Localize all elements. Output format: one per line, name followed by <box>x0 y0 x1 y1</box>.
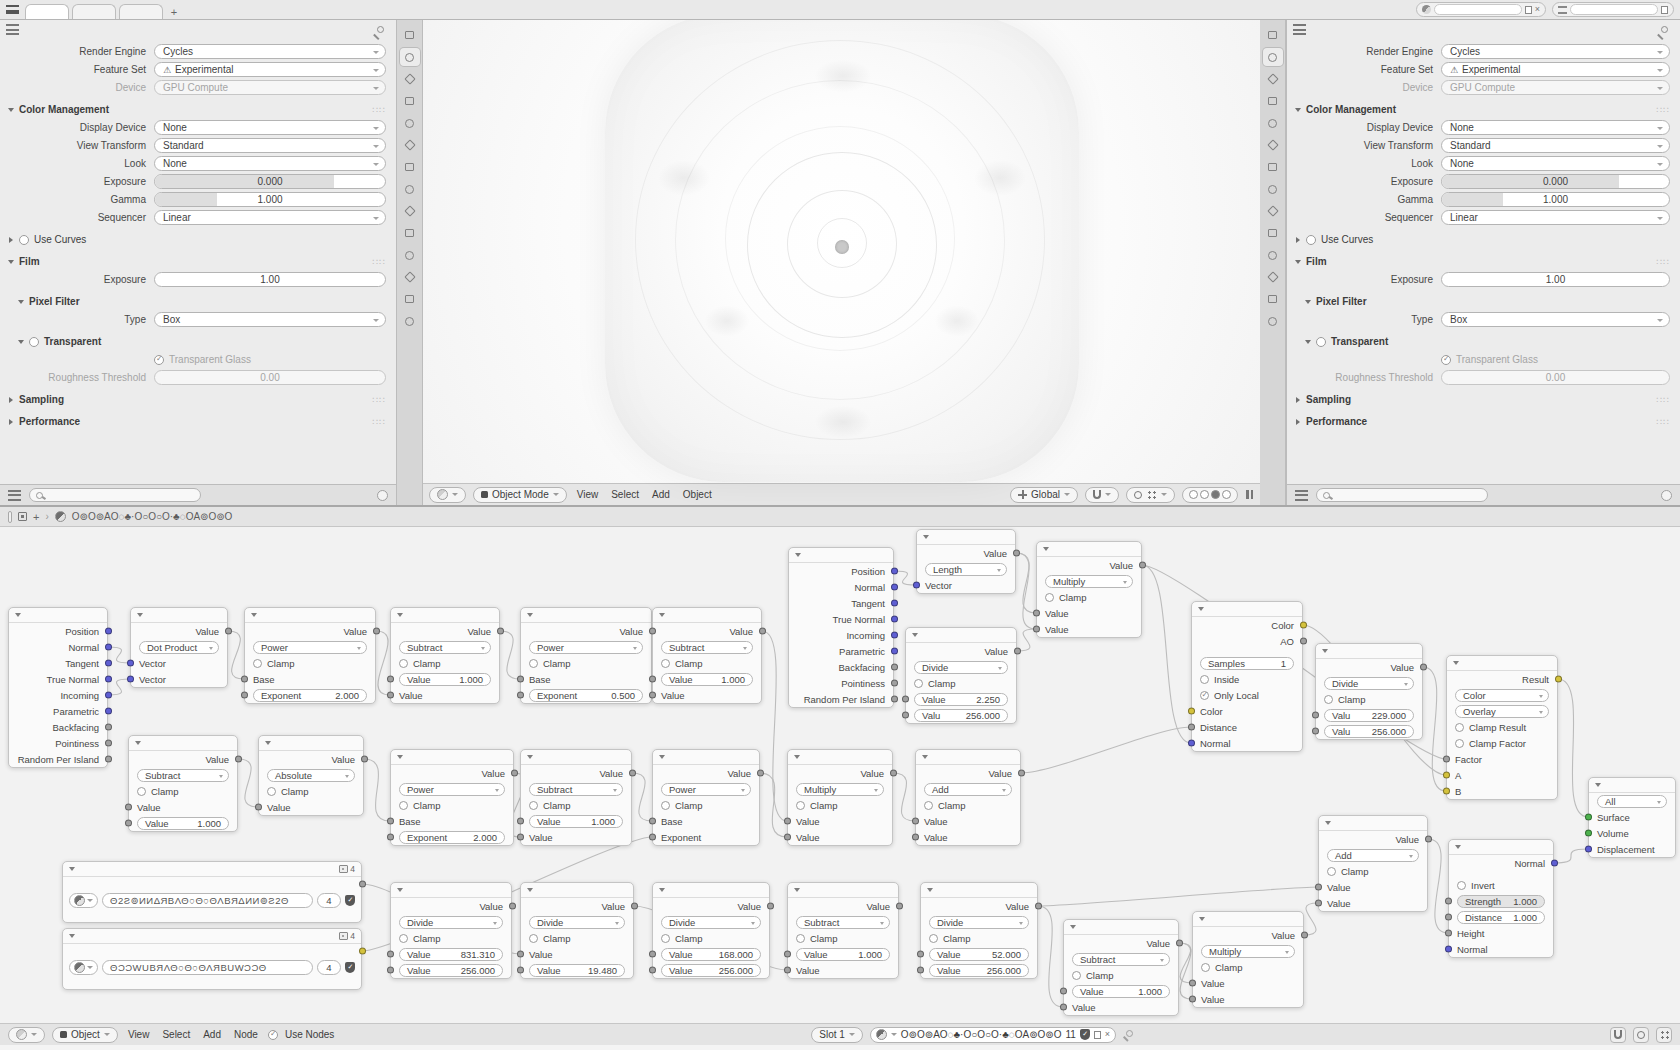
socket-sub2:i1[interactable] <box>649 692 656 699</box>
section-pixel-filter[interactable]: Pixel Filter <box>6 293 386 310</box>
section-use-curves[interactable]: Use Curves <box>6 231 386 248</box>
shading-preview-button[interactable] <box>1211 490 1220 499</box>
fake-user-shield-icon[interactable] <box>1080 1029 1090 1040</box>
socket-bump1:i3[interactable] <box>1445 946 1452 953</box>
socket-sub3:i1[interactable] <box>125 820 132 827</box>
properties-editor-icon[interactable] <box>1293 24 1306 35</box>
sequencer-select[interactable]: Linear <box>154 210 386 225</box>
snap-toggle[interactable] <box>1085 487 1119 503</box>
node-header[interactable] <box>921 883 1037 898</box>
value-field[interactable]: Valu256.000 <box>914 709 1008 722</box>
look-select[interactable]: None <box>154 156 386 171</box>
material-users-count[interactable]: 11 <box>1065 1029 1075 1040</box>
menu-add[interactable]: Add <box>649 489 673 500</box>
section-transparent[interactable]: Transparent <box>1293 333 1670 350</box>
socket-bump1:o0[interactable] <box>1551 860 1558 867</box>
socket-geo2:o2[interactable] <box>891 600 898 607</box>
image-datablock-button[interactable] <box>69 960 98 975</box>
socket-div1948:i0[interactable] <box>517 951 524 958</box>
operation-select[interactable]: Divide <box>1324 677 1414 690</box>
transparent-glass-checkbox[interactable] <box>154 355 164 365</box>
use-nodes-checkbox[interactable] <box>268 1030 278 1040</box>
render-engine-select[interactable]: Cycles <box>154 44 386 59</box>
texture-tab[interactable] <box>400 312 420 330</box>
socket-div831:i0[interactable] <box>387 951 394 958</box>
node-header[interactable] <box>1037 542 1141 557</box>
grid-button[interactable] <box>1656 1027 1672 1043</box>
socket-div229:i0[interactable] <box>1312 712 1319 719</box>
properties-editor-type-icon[interactable] <box>8 490 21 501</box>
menu-icon[interactable] <box>6 5 19 14</box>
tool-tab[interactable] <box>400 26 420 44</box>
socket-pow1:i0[interactable] <box>241 676 248 683</box>
view-layer-name-field[interactable] <box>1570 4 1658 15</box>
image-name-field[interactable]: ΘƆƆWUBЯΛΘ○Θ○ΘΛЯBUWƆƆΘ <box>102 960 313 975</box>
gamma-slider[interactable]: 1.000 <box>154 192 386 207</box>
wire[interactable] <box>632 773 652 821</box>
checkbox-clamp-factor[interactable] <box>1455 739 1464 748</box>
operation-select[interactable]: All <box>1597 795 1667 808</box>
feature-set-select[interactable]: ⚠Experimental <box>154 62 386 77</box>
collapse-chevron-icon[interactable] <box>659 755 665 759</box>
scene-tab[interactable] <box>400 114 420 132</box>
collapse-chevron-icon[interactable] <box>527 888 533 892</box>
value-field[interactable]: Value256.000 <box>929 964 1029 977</box>
image-name-field[interactable]: Θ2Ƨ⊚ИИΔЯBΛΘ○Θ○ΘΛBЯΔИИ⊚Ƨ2Θ <box>102 893 313 908</box>
operation-select[interactable]: Divide <box>661 916 761 929</box>
value-field[interactable]: Valu256.000 <box>1324 725 1414 738</box>
socket-mix1:i0[interactable] <box>1443 756 1450 763</box>
collapse-chevron-icon[interactable] <box>1322 649 1328 653</box>
value-field[interactable]: Value1.000 <box>137 817 229 830</box>
collapse-chevron-icon[interactable] <box>923 535 929 539</box>
menu-select[interactable]: Select <box>608 489 642 500</box>
socket-div168:i1[interactable] <box>649 967 656 974</box>
object-tab[interactable] <box>400 158 420 176</box>
checkbox-clamp[interactable] <box>1324 695 1333 704</box>
collapse-chevron-icon[interactable] <box>659 888 665 892</box>
socket-div1948:o0[interactable] <box>631 903 638 910</box>
operation-select[interactable]: Divide <box>529 916 625 929</box>
socket-abs1:i0[interactable] <box>255 804 262 811</box>
socket-ao1:i1[interactable] <box>1188 724 1195 731</box>
operation-select[interactable]: Multiply <box>1201 945 1295 958</box>
node-header[interactable] <box>391 750 513 765</box>
view-layer-tab[interactable] <box>400 92 420 110</box>
node-header[interactable]: 4 <box>63 862 361 877</box>
socket-pow3:i1[interactable] <box>387 834 394 841</box>
collapse-chevron-icon[interactable] <box>397 888 403 892</box>
socket-div831:i1[interactable] <box>387 967 394 974</box>
node-geo1[interactable]: PositionNormalTangentTrue NormalIncoming… <box>8 607 108 768</box>
node-mix1[interactable]: ResultColorOverlayClamp ResultClamp Fact… <box>1446 655 1558 800</box>
socket-div831:o0[interactable] <box>509 903 516 910</box>
transparent-glass-checkbox[interactable] <box>1441 355 1451 365</box>
value-field[interactable]: Value2.250 <box>914 693 1008 706</box>
close-icon[interactable]: × <box>1535 5 1540 14</box>
socket-ao1:i0[interactable] <box>1188 708 1195 715</box>
operation-select[interactable]: Dot Product <box>139 641 219 654</box>
scene-tab[interactable] <box>1263 114 1283 132</box>
roughness-threshold-field[interactable]: 0.00 <box>1441 370 1670 385</box>
wire[interactable] <box>1021 727 1191 773</box>
socket-subb:i0[interactable] <box>784 951 791 958</box>
viewport-object[interactable] <box>605 20 1079 482</box>
modifiers-tab[interactable] <box>1263 180 1283 198</box>
collapse-chevron-icon[interactable] <box>527 613 533 617</box>
socket-sub4:i1[interactable] <box>517 834 524 841</box>
overlap-button[interactable] <box>1633 1027 1649 1043</box>
node-header[interactable] <box>1316 644 1422 659</box>
constraints-tab[interactable] <box>400 246 420 264</box>
socket-abs1:o0[interactable] <box>361 756 368 763</box>
checkbox-clamp[interactable] <box>1045 593 1054 602</box>
node-mul3[interactable]: ValueMultiplyClampValueValue <box>1192 911 1304 1008</box>
value-field[interactable]: Value1.000 <box>399 673 491 686</box>
socket-subc:i1[interactable] <box>1060 1004 1067 1011</box>
shading-wireframe-button[interactable] <box>1189 490 1198 499</box>
node-header[interactable] <box>129 736 237 751</box>
node-subb[interactable]: ValueSubtractClampValue1.000Value <box>787 882 899 979</box>
node-geo2[interactable]: PositionNormalTangentTrue NormalIncoming… <box>788 547 894 708</box>
socket-sub1:i0[interactable] <box>387 676 394 683</box>
value-field[interactable]: Value831.310 <box>399 948 503 961</box>
collapse-chevron-icon[interactable] <box>69 867 75 871</box>
value-field[interactable]: Valu229.000 <box>1324 709 1414 722</box>
image-users-count[interactable]: 4 <box>317 893 341 908</box>
socket-div52:i0[interactable] <box>917 951 924 958</box>
collapse-chevron-icon[interactable] <box>1198 607 1204 611</box>
constraints-tab[interactable] <box>1263 246 1283 264</box>
operation-select[interactable]: Overlay <box>1455 705 1549 718</box>
node-abs1[interactable]: ValueAbsoluteClampValue <box>258 735 364 816</box>
value-field[interactable]: Exponent2.000 <box>399 831 505 844</box>
physics-tab[interactable] <box>400 224 420 242</box>
collapse-chevron-icon[interactable] <box>659 613 665 617</box>
checkbox-clamp[interactable] <box>796 934 805 943</box>
node-pow1[interactable]: ValuePowerClampBaseExponent2.000 <box>244 607 376 704</box>
pause-icon[interactable] <box>1245 490 1254 499</box>
options-button[interactable] <box>377 490 388 501</box>
collapse-chevron-icon[interactable] <box>1455 845 1461 849</box>
wire[interactable] <box>1016 553 1036 629</box>
checkbox-clamp[interactable] <box>253 659 262 668</box>
value-field[interactable]: Value1.000 <box>1072 985 1170 998</box>
node-canvas[interactable]: PositionNormalTangentTrue NormalIncoming… <box>0 527 1680 1023</box>
node-pow3[interactable]: ValuePowerClampBaseExponent2.000 <box>390 749 514 846</box>
node-header[interactable] <box>653 883 769 898</box>
socket-mul2:o0[interactable] <box>890 770 897 777</box>
node-header[interactable] <box>1192 602 1302 617</box>
socket-geo1:o3[interactable] <box>105 676 112 683</box>
options-button[interactable] <box>1661 490 1672 501</box>
view-transform-select[interactable]: Standard <box>154 138 386 153</box>
node-add2[interactable]: ValueAddClampValueValue <box>1318 815 1428 912</box>
object-tab[interactable] <box>1263 158 1283 176</box>
checkbox-clamp[interactable] <box>529 934 538 943</box>
node-header[interactable] <box>788 883 898 898</box>
collapse-chevron-icon[interactable] <box>1199 917 1205 921</box>
socket-sub2:o0[interactable] <box>759 628 766 635</box>
operation-select[interactable]: Subtract <box>399 641 491 654</box>
wire[interactable] <box>1017 629 1036 651</box>
socket-sub3:o0[interactable] <box>235 756 242 763</box>
socket-pow3:o0[interactable] <box>511 770 518 777</box>
node-add1[interactable]: ValueAddClampValueValue <box>915 749 1021 846</box>
socket-geo2:o4[interactable] <box>891 632 898 639</box>
node-pow4[interactable]: ValuePowerClampBaseExponent <box>652 749 760 846</box>
fake-user-shield-icon[interactable] <box>345 962 355 973</box>
value-field[interactable]: Samples1 <box>1200 657 1294 670</box>
checkbox-clamp[interactable] <box>137 787 146 796</box>
section-transparent[interactable]: Transparent <box>6 333 386 350</box>
grip-icon[interactable] <box>373 257 386 267</box>
add-workspace-button[interactable]: + <box>166 4 182 19</box>
collapse-chevron-icon[interactable] <box>795 553 801 557</box>
filter-type-select[interactable]: Box <box>1441 312 1670 327</box>
operation-select[interactable]: Subtract <box>1072 953 1170 966</box>
tool-tab[interactable] <box>1263 26 1283 44</box>
node-header[interactable] <box>653 608 761 623</box>
socket-sub1:o0[interactable] <box>497 628 504 635</box>
value-field[interactable]: Distance1.000 <box>1457 911 1545 924</box>
node-len1[interactable]: ValueLengthVector <box>916 529 1016 594</box>
socket-sub1:i1[interactable] <box>387 692 394 699</box>
socket-mul3:o0[interactable] <box>1301 932 1308 939</box>
node-header[interactable] <box>906 628 1016 643</box>
section-performance[interactable]: Performance <box>6 413 386 430</box>
node-div229[interactable]: ValueDivideClampValu229.000Valu256.000 <box>1315 643 1423 740</box>
socket-add1:o0[interactable] <box>1018 770 1025 777</box>
slot-select[interactable]: Slot 1 <box>811 1027 863 1043</box>
editor-type-button[interactable] <box>8 1027 45 1043</box>
wire[interactable] <box>500 631 520 679</box>
wire[interactable] <box>228 631 244 679</box>
socket-sub4:i0[interactable] <box>517 818 524 825</box>
socket-pow1:o0[interactable] <box>373 628 380 635</box>
shading-rendered-button[interactable] <box>1222 490 1231 499</box>
checkbox-clamp[interactable] <box>796 801 805 810</box>
grip-icon[interactable] <box>373 395 386 405</box>
node-div52[interactable]: ValueDivideClampValue52.000Value256.000 <box>920 882 1038 979</box>
collapse-chevron-icon[interactable] <box>69 934 75 938</box>
grip-icon[interactable] <box>1657 257 1670 267</box>
socket-pow4:i0[interactable] <box>649 818 656 825</box>
socket-len1:o0[interactable] <box>1013 550 1020 557</box>
value-field[interactable]: Value1.000 <box>529 815 623 828</box>
transparent-checkbox[interactable] <box>1316 337 1326 347</box>
socket-pow2:o0[interactable] <box>649 628 656 635</box>
grip-icon[interactable] <box>373 105 386 115</box>
checkbox-clamp[interactable] <box>529 659 538 668</box>
search-input[interactable] <box>29 488 201 502</box>
operation-select[interactable]: Multiply <box>796 783 884 796</box>
socket-add2:i1[interactable] <box>1315 900 1322 907</box>
socket-add2:i0[interactable] <box>1315 884 1322 891</box>
node-div1948[interactable]: ValueDivideClampValueValue19.480 <box>520 882 634 979</box>
socket-grp1:o0[interactable] <box>359 881 366 888</box>
object-data-tab[interactable] <box>1263 268 1283 286</box>
section-performance[interactable]: Performance <box>1293 413 1670 430</box>
properties-editor-icon[interactable] <box>6 24 19 35</box>
device-select[interactable]: GPU Compute <box>1441 80 1670 95</box>
wire[interactable] <box>1179 943 1192 999</box>
properties-editor-type-icon[interactable] <box>1295 490 1308 501</box>
socket-div168:o0[interactable] <box>767 903 774 910</box>
node-div2250[interactable]: ValueDivideClampValue2.250Valu256.000 <box>905 627 1017 724</box>
grip-icon[interactable] <box>373 417 386 427</box>
socket-pow4:o0[interactable] <box>757 770 764 777</box>
mode-select[interactable]: Object Mode <box>473 487 567 503</box>
operation-select[interactable]: Subtract <box>529 783 623 796</box>
proportional-editing-toggle[interactable] <box>1126 487 1175 503</box>
checkbox-clamp[interactable] <box>661 934 670 943</box>
object-data-tab[interactable] <box>400 268 420 286</box>
workspace-tab[interactable] <box>72 4 116 19</box>
socket-dot1:i1[interactable] <box>127 676 134 683</box>
checkbox-clamp[interactable] <box>924 801 933 810</box>
node-sub3[interactable]: ValueSubtractClampValueValue1.000 <box>128 735 238 832</box>
checkbox-clamp[interactable] <box>1072 971 1081 980</box>
shading-solid-button[interactable] <box>1200 490 1209 499</box>
render-engine-select[interactable]: Cycles <box>1441 44 1670 59</box>
gamma-slider[interactable]: 1.000 <box>1441 192 1670 207</box>
node-header[interactable] <box>1449 840 1553 855</box>
material-tab[interactable] <box>1263 290 1283 308</box>
collapse-chevron-icon[interactable] <box>927 888 933 892</box>
editor-toggle-chip[interactable] <box>8 511 12 523</box>
menu-view[interactable]: View <box>125 1029 153 1040</box>
checkbox-clamp[interactable] <box>529 801 538 810</box>
collapse-chevron-icon[interactable] <box>912 633 918 637</box>
display-device-select[interactable]: None <box>1441 120 1670 135</box>
socket-pow2:i0[interactable] <box>517 676 524 683</box>
display-device-select[interactable]: None <box>154 120 386 135</box>
socket-mix1:i2[interactable] <box>1443 788 1450 795</box>
editor-type-button[interactable] <box>429 487 466 503</box>
socket-geo2:o3[interactable] <box>891 616 898 623</box>
operation-select[interactable]: Multiply <box>1045 575 1133 588</box>
socket-div1948:i1[interactable] <box>517 967 524 974</box>
node-sub2[interactable]: ValueSubtractClampValue1.000Value <box>652 607 762 704</box>
operation-select[interactable]: Color <box>1455 689 1549 702</box>
socket-out1:i0[interactable] <box>1585 814 1592 821</box>
operation-select[interactable]: Power <box>399 783 505 796</box>
grip-icon[interactable] <box>1657 417 1670 427</box>
socket-div229:o0[interactable] <box>1420 664 1427 671</box>
socket-subc:i0[interactable] <box>1060 988 1067 995</box>
collapse-chevron-icon[interactable] <box>794 888 800 892</box>
material-tab[interactable] <box>400 290 420 308</box>
socket-mul3:i1[interactable] <box>1189 996 1196 1003</box>
filter-type-select[interactable]: Box <box>154 312 386 327</box>
checkbox-clamp-result[interactable] <box>1455 723 1464 732</box>
film-exposure-field[interactable]: 1.00 <box>1441 272 1670 287</box>
exposure-slider[interactable]: 0.000 <box>1441 174 1670 189</box>
node-header[interactable] <box>917 530 1015 545</box>
socket-dot1:o0[interactable] <box>225 628 232 635</box>
wire[interactable] <box>1038 887 1318 906</box>
roughness-threshold-field[interactable]: 0.00 <box>154 370 386 385</box>
feature-set-select[interactable]: ⚠Experimental <box>1441 62 1670 77</box>
socket-out1:i2[interactable] <box>1585 846 1592 853</box>
socket-bump1:i0[interactable] <box>1445 898 1452 905</box>
socket-div2250:i1[interactable] <box>902 712 909 719</box>
socket-mix1:i1[interactable] <box>1443 772 1450 779</box>
operation-select[interactable]: Subtract <box>796 916 890 929</box>
output-tab[interactable] <box>400 70 420 88</box>
node-sub1[interactable]: ValueSubtractClampValue1.000Value <box>390 607 500 704</box>
socket-multop:o0[interactable] <box>1139 562 1146 569</box>
socket-geo1:o8[interactable] <box>105 756 112 763</box>
socket-div2250:o0[interactable] <box>1014 648 1021 655</box>
node-grp2[interactable]: 4ΘƆƆWUBЯΛΘ○Θ○ΘΛЯBUWƆƆΘ4 <box>62 928 362 990</box>
socket-bump1:i1[interactable] <box>1445 914 1452 921</box>
sequencer-select[interactable]: Linear <box>1441 210 1670 225</box>
node-header[interactable] <box>521 608 651 623</box>
collapse-chevron-icon[interactable] <box>922 755 928 759</box>
value-field[interactable]: Value19.480 <box>529 964 625 977</box>
socket-geo2:o5[interactable] <box>891 648 898 655</box>
node-header[interactable] <box>788 750 892 765</box>
node-subc[interactable]: ValueSubtractClampValue1.000Value <box>1063 919 1179 1016</box>
modifiers-tab[interactable] <box>400 180 420 198</box>
collapse-chevron-icon[interactable] <box>265 741 271 745</box>
socket-pow1:i1[interactable] <box>241 692 248 699</box>
viewport-stage[interactable] <box>423 20 1260 483</box>
socket-geo1:o1[interactable] <box>105 644 112 651</box>
node-out1[interactable]: AllSurfaceVolumeDisplacement <box>1588 777 1676 858</box>
socket-div52:o0[interactable] <box>1035 903 1042 910</box>
operation-select[interactable]: Divide <box>399 916 503 929</box>
workspace-tab[interactable] <box>25 4 69 19</box>
section-sampling[interactable]: Sampling <box>6 391 386 408</box>
node-header[interactable] <box>653 750 759 765</box>
socket-multop:i0[interactable] <box>1033 610 1040 617</box>
menu-view[interactable]: View <box>574 489 602 500</box>
particles-tab[interactable] <box>1263 202 1283 220</box>
socket-geo1:o2[interactable] <box>105 660 112 667</box>
socket-bump1:i2[interactable] <box>1445 930 1452 937</box>
view-transform-select[interactable]: Standard <box>1441 138 1670 153</box>
physics-tab[interactable] <box>1263 224 1283 242</box>
node-grp1[interactable]: 4Θ2Ƨ⊚ИИΔЯBΛΘ○Θ○ΘΛBЯΔИИ⊚Ƨ2Θ4 <box>62 861 362 923</box>
socket-div2250:i0[interactable] <box>902 696 909 703</box>
socket-div229:i1[interactable] <box>1312 728 1319 735</box>
value-field[interactable]: Exponent2.000 <box>253 689 367 702</box>
operation-select[interactable]: Length <box>925 563 1007 576</box>
checkbox-only-local[interactable] <box>1200 691 1209 700</box>
socket-ao1:o0[interactable] <box>1300 622 1307 629</box>
grip-icon[interactable] <box>1657 105 1670 115</box>
collapse-chevron-icon[interactable] <box>1325 821 1331 825</box>
socket-mix1:o0[interactable] <box>1555 676 1562 683</box>
collapse-chevron-icon[interactable] <box>137 613 143 617</box>
node-dot1[interactable]: ValueDot ProductVectorVector <box>130 607 228 688</box>
unlink-icon[interactable]: × <box>1105 1030 1110 1039</box>
image-users-count[interactable]: 4 <box>317 960 341 975</box>
node-mul2[interactable]: ValueMultiplyClampValueValue <box>787 749 893 846</box>
checkbox-clamp[interactable] <box>399 934 408 943</box>
value-field[interactable]: Strength1.000 <box>1457 895 1545 908</box>
checkbox-clamp[interactable] <box>661 801 670 810</box>
node-header[interactable] <box>259 736 363 751</box>
look-select[interactable]: None <box>1441 156 1670 171</box>
workspace-tab[interactable] <box>119 4 163 19</box>
value-field[interactable]: Value256.000 <box>399 964 503 977</box>
operation-select[interactable]: Power <box>529 641 643 654</box>
shader-type-select[interactable]: Object <box>52 1027 118 1043</box>
